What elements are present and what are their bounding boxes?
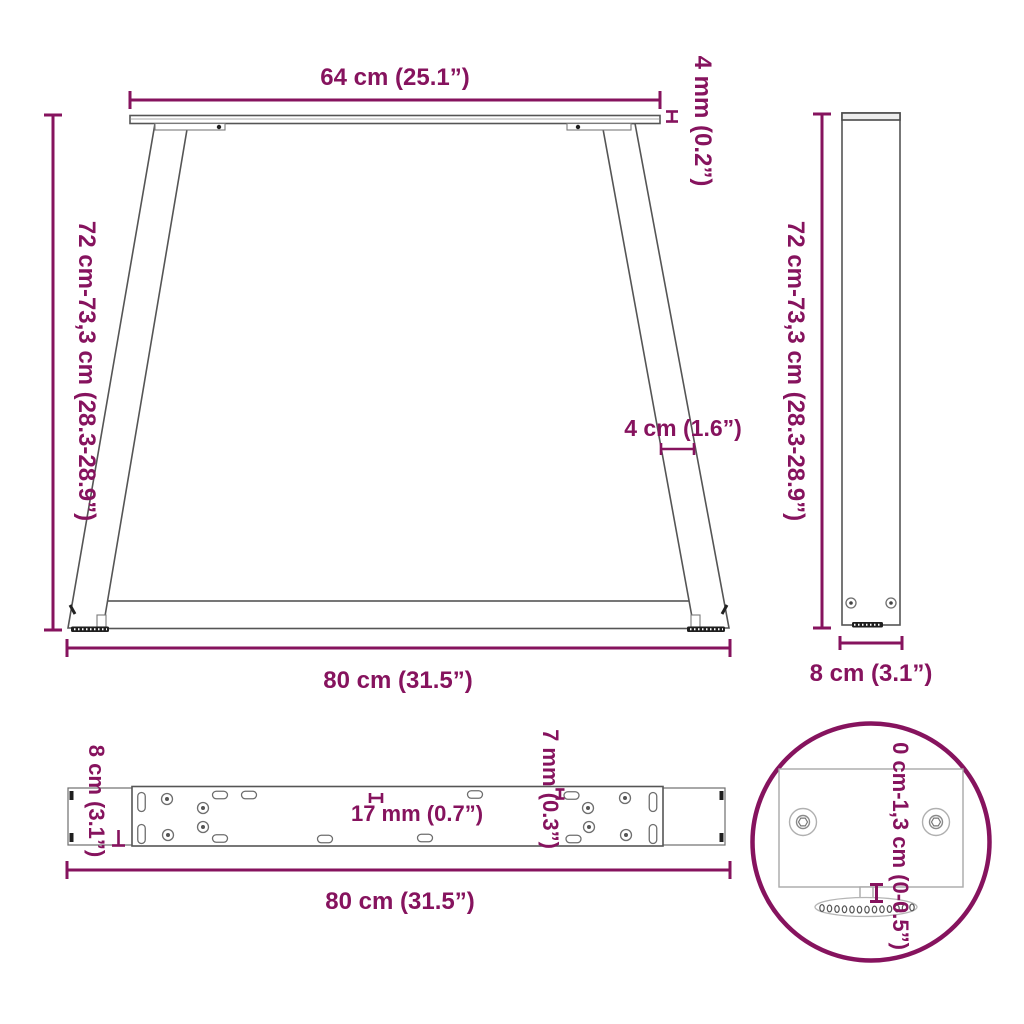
front-top-plate — [130, 116, 660, 124]
plate-length-label: 80 cm (31.5”) — [325, 888, 474, 915]
front-left-bracket — [155, 124, 225, 131]
plate-end-clip — [70, 833, 74, 842]
front-top-width-label: 64 cm (25.1”) — [320, 64, 469, 91]
detail-view: 0 cm-1,3 cm (0-0.5”) — [753, 724, 990, 961]
plate-end-clip — [70, 791, 74, 800]
plate-depth-label: 8 cm (3.1”) — [84, 745, 109, 858]
plate-hole-diameter-label: 7 mm (0.3”) — [538, 729, 563, 849]
side-leg-body — [842, 113, 900, 625]
front-left-bracket-bolt — [217, 125, 221, 129]
plate-top-view: 8 cm (3.1”) 17 mm (0.7”) 7 mm (0.3”) 80 … — [67, 729, 730, 915]
front-height-label: 72 cm-73,3 cm (28.3-28.9”) — [73, 221, 100, 521]
slot-hole — [649, 825, 657, 844]
front-leg-width-dimension: 4 cm (1.6”) — [624, 415, 742, 455]
front-right-bracket-bolt — [576, 125, 580, 129]
front-left-foot-bracket — [97, 615, 106, 627]
front-right-leg — [602, 124, 729, 629]
front-bottom-crossbar — [100, 601, 697, 629]
side-height-dimension: 72 cm-73,3 cm (28.3-28.9”) — [782, 114, 831, 628]
side-screw-right-center — [889, 601, 893, 605]
plate-slot-width-label: 17 mm (0.7”) — [351, 801, 483, 826]
technical-drawing-page: 64 cm (25.1”) 4 mm (0.2”) 72 cm-73,3 cm … — [0, 0, 1024, 1024]
slot-hole — [138, 825, 146, 844]
front-bottom-width-label: 80 cm (31.5”) — [323, 667, 472, 694]
front-plate-thickness-label: 4 mm (0.2”) — [689, 56, 716, 187]
front-plate-thickness-dimension: 4 mm (0.2”) — [666, 56, 716, 187]
side-depth-dimension: 8 cm (3.1”) — [810, 636, 933, 687]
slot-hole — [649, 793, 657, 812]
side-height-label: 72 cm-73,3 cm (28.3-28.9”) — [782, 221, 809, 521]
side-depth-label: 8 cm (3.1”) — [810, 660, 933, 687]
plate-length-dimension: 80 cm (31.5”) — [67, 861, 730, 915]
front-right-foot-bracket — [691, 615, 700, 627]
plate-end-clip — [720, 791, 724, 800]
slot-hole — [138, 793, 146, 812]
detail-adjustment-label: 0 cm-1,3 cm (0-0.5”) — [888, 742, 913, 950]
plate-hole-diameter-dimension: 7 mm (0.3”) — [538, 729, 565, 849]
drawing-canvas: 64 cm (25.1”) 4 mm (0.2”) 72 cm-73,3 cm … — [0, 0, 1024, 1024]
front-leg-width-label: 4 cm (1.6”) — [624, 415, 742, 441]
side-screw-left-center — [849, 601, 853, 605]
side-top-plate-cap — [842, 113, 900, 120]
front-view: 64 cm (25.1”) 4 mm (0.2”) 72 cm-73,3 cm … — [44, 56, 742, 694]
front-bottom-width-dimension: 80 cm (31.5”) — [67, 639, 730, 694]
plate-end-clip — [720, 833, 724, 842]
side-view: 72 cm-73,3 cm (28.3-28.9”) 8 cm (3.1”) — [782, 113, 932, 687]
front-top-width-dimension: 64 cm (25.1”) — [130, 64, 660, 109]
